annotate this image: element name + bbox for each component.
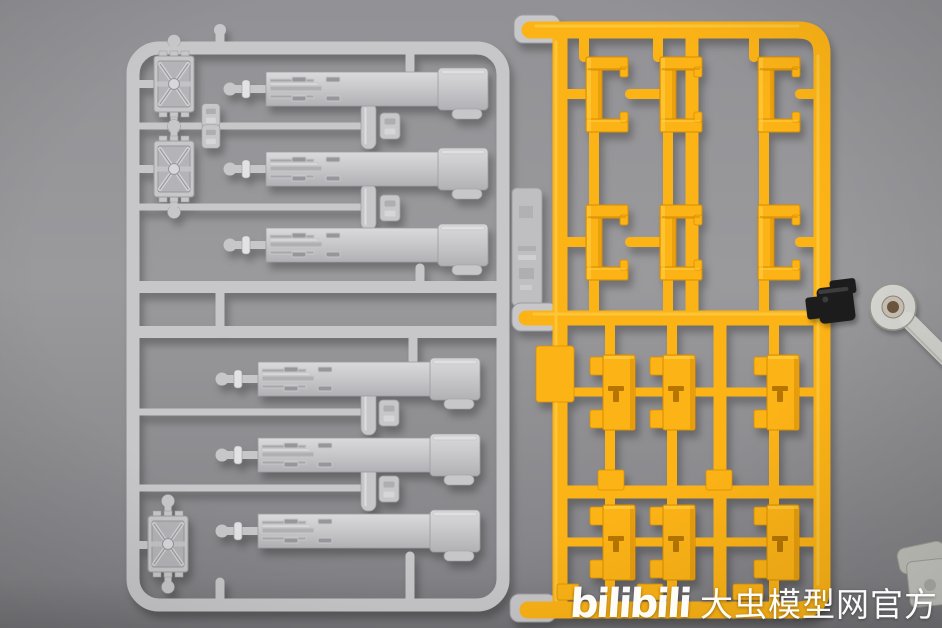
clip-part [380, 195, 400, 221]
photo-model-kit-sprues: bilibili 大虫模型网官方 [0, 0, 942, 628]
clip-part [202, 104, 220, 127]
sprue-scene [0, 0, 942, 628]
stand-clamp [803, 278, 860, 326]
gray-molded-tag [512, 188, 542, 306]
c-bracket-part [758, 205, 800, 280]
joint-screw [887, 301, 899, 313]
stand-arm [870, 284, 942, 364]
gray-sprue [133, 24, 542, 605]
fender-blade-part [216, 434, 480, 485]
watermark: bilibili 大虫模型网官方 [570, 584, 938, 624]
fender-blade-part [216, 358, 480, 409]
fender-blade-part [224, 68, 488, 119]
c-bracket-part [758, 57, 800, 132]
c-bracket-part [586, 57, 628, 132]
rod-part [361, 103, 376, 149]
yellow-blank-tab [536, 346, 574, 402]
grille-hatch-part [148, 495, 188, 594]
fender-blade-part [224, 148, 488, 199]
yellow-sprue [510, 15, 822, 622]
c-bracket-part [586, 205, 628, 280]
fender-blade-part [216, 510, 480, 561]
clip-part [379, 476, 399, 502]
rod-part [361, 184, 376, 230]
clip-part [379, 400, 399, 426]
clip-part [202, 125, 220, 148]
yellow-gate-nubs [536, 346, 763, 600]
clip-part [380, 113, 400, 139]
fender-blade-part [224, 224, 488, 275]
watermark-site-name: 大虫模型网官方 [700, 588, 938, 621]
bilibili-logo: bilibili [569, 584, 691, 624]
